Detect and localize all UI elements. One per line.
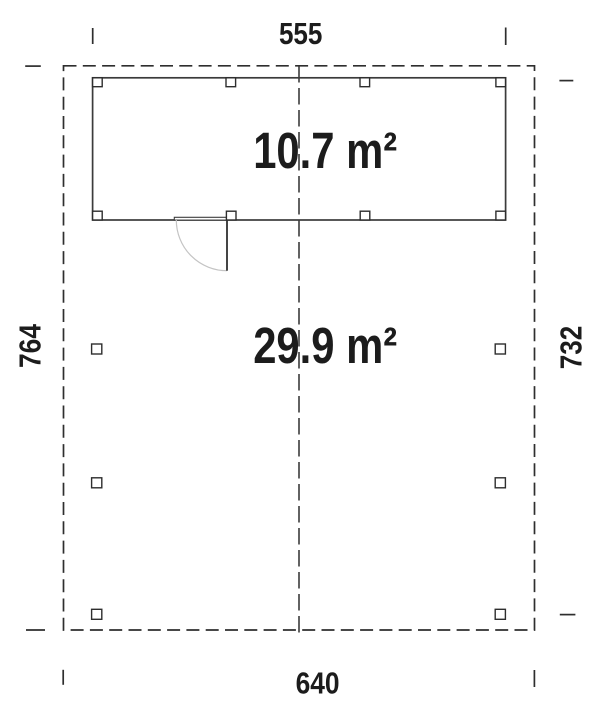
svg-text:732: 732 [554, 326, 589, 370]
svg-text:640: 640 [296, 665, 340, 700]
svg-text:555: 555 [279, 16, 323, 51]
svg-text:29.9 m²: 29.9 m² [253, 317, 397, 374]
svg-text:764: 764 [13, 323, 48, 368]
svg-text:10.7 m²: 10.7 m² [253, 122, 397, 179]
